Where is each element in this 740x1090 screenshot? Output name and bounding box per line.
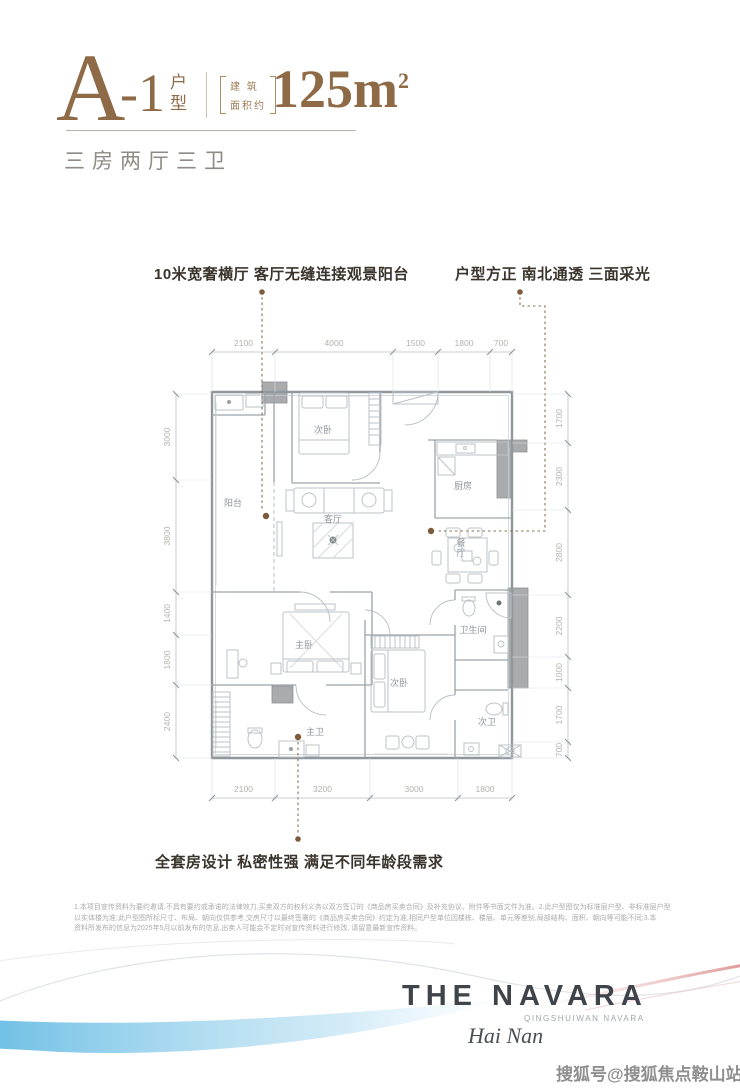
rooms-summary: 三房两厅三卫: [64, 145, 232, 175]
interior-walls: [212, 392, 512, 758]
svg-text:2800: 2800: [554, 543, 564, 562]
area-value: 125m2: [272, 62, 409, 116]
room-label: 次卧: [314, 424, 332, 435]
callout-dot: [295, 836, 301, 842]
area-prefix-line1: 建 筑: [230, 78, 266, 93]
watermark: 搜狐号@搜狐焦点鞍山站: [556, 1060, 740, 1085]
svg-text:1800: 1800: [162, 650, 172, 669]
room-label: 客厅: [324, 513, 342, 524]
gray-curve-2: [0, 940, 455, 962]
callout-dot: [295, 734, 301, 740]
room-label: 主卧: [295, 639, 313, 650]
room-label: 阳台: [224, 497, 242, 508]
svg-text:700: 700: [494, 338, 508, 348]
svg-text:3200: 3200: [313, 784, 332, 794]
svg-text:1700: 1700: [554, 705, 564, 724]
brand-subtitle: QINGSHUIWAN NAVARA: [524, 1014, 645, 1023]
svg-text:3000: 3000: [162, 427, 172, 446]
svg-text:3000: 3000: [405, 784, 424, 794]
disclaimer-line: 1.本项目宣传资料为要约邀请,不具有要约或承诺的法律效力,买卖双方的权利义务以双…: [74, 903, 674, 914]
svg-text:700: 700: [554, 743, 564, 757]
plan-letter: A: [56, 40, 125, 136]
svg-text:2400: 2400: [162, 712, 172, 731]
callout-dot: [263, 513, 269, 519]
room-label: 厨房: [454, 480, 472, 491]
svg-text:3800: 3800: [162, 526, 172, 545]
svg-text:1500: 1500: [406, 338, 425, 348]
structural-shafts: [262, 382, 528, 703]
room-label: 餐厅: [456, 537, 465, 558]
svg-text:1800: 1800: [476, 784, 495, 794]
callout-bottom: 全套房设计 私密性强 满足不同年龄段需求: [155, 851, 443, 872]
svg-text:2200: 2200: [554, 616, 564, 635]
area-prefix-bracket: 建 筑 面积约: [220, 76, 276, 114]
svg-text:1000: 1000: [554, 663, 564, 682]
disclaimer-line: 以实体楼为准;此户型图所标尺寸、布局、朝向仅供参考,交房尺寸以最终签署的《商品房…: [74, 914, 674, 925]
svg-text:2100: 2100: [234, 338, 253, 348]
plan-type-label: 户 型: [170, 72, 188, 114]
svg-text:1400: 1400: [162, 604, 172, 623]
callout-left: 10米宽奢横厅 客厅无缝连接观景阳台: [154, 263, 409, 284]
header: A -1 户 型 建 筑 面积约 125m2 三房两厅三卫: [0, 0, 740, 190]
room-label: 次卫: [478, 716, 496, 727]
header-divider: [206, 72, 207, 118]
callout-right: 户型方正 南北通透 三面采光: [455, 263, 650, 284]
room-label: 次卧: [390, 677, 408, 688]
svg-text:2300: 2300: [554, 467, 564, 486]
floorplan-poster: { "header": { "plan_letter": "A", "plan_…: [0, 0, 740, 1090]
furniture: [213, 392, 521, 757]
callout-dot: [259, 289, 265, 295]
callout-dot: [428, 528, 434, 534]
brand-region: Hai Nan: [468, 1023, 543, 1049]
brand-name: THE NAVARA: [402, 980, 648, 1013]
floorplan-svg: 2100400015001800700210032003000180030003…: [0, 285, 740, 845]
svg-text:2100: 2100: [234, 784, 253, 794]
svg-text:1700: 1700: [554, 409, 564, 428]
room-label: 卫生间: [459, 624, 486, 635]
plan-suffix: -1: [120, 66, 165, 120]
callout-dot: [517, 289, 523, 295]
header-rule: [66, 130, 356, 131]
svg-text:4000: 4000: [325, 338, 344, 348]
area-prefix-line2: 面积约: [230, 97, 266, 112]
svg-text:1800: 1800: [455, 338, 474, 348]
room-label: 主卫: [306, 726, 324, 737]
exterior-walls: [212, 392, 512, 758]
